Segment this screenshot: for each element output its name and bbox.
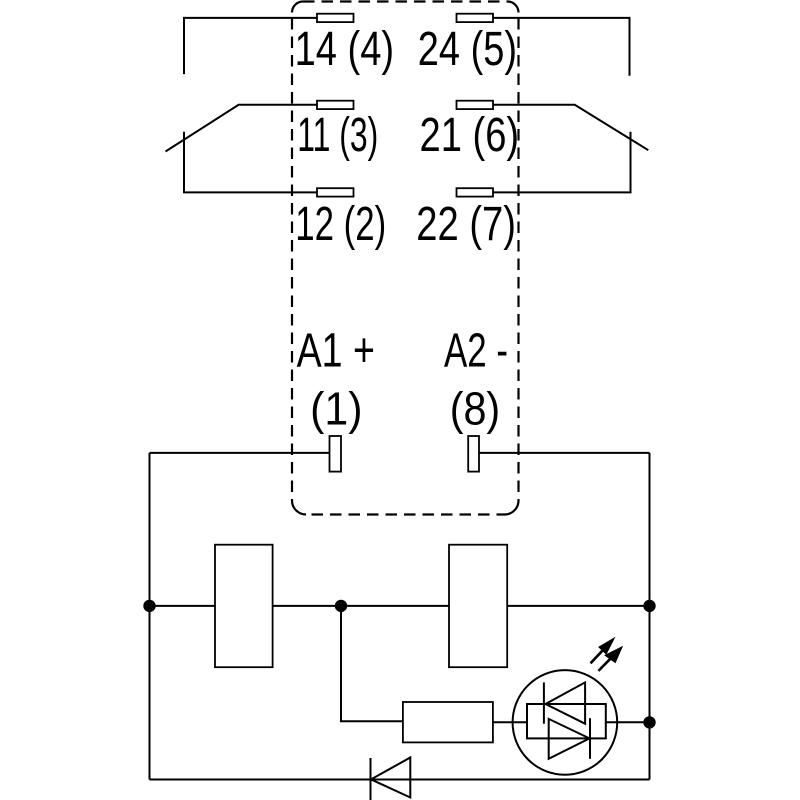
svg-text:A2 -: A2 - — [444, 324, 508, 377]
svg-text:14 (4): 14 (4) — [295, 23, 395, 76]
svg-text:(1): (1) — [310, 383, 362, 435]
svg-text:12 (2): 12 (2) — [295, 198, 386, 251]
svg-text:11 (3): 11 (3) — [297, 109, 378, 162]
svg-text:24 (5): 24 (5) — [418, 23, 517, 76]
svg-text:22 (7): 22 (7) — [416, 198, 516, 251]
svg-text:21 (6): 21 (6) — [420, 109, 520, 162]
svg-text:(8): (8) — [450, 383, 501, 435]
svg-text:A1 +: A1 + — [297, 324, 375, 377]
